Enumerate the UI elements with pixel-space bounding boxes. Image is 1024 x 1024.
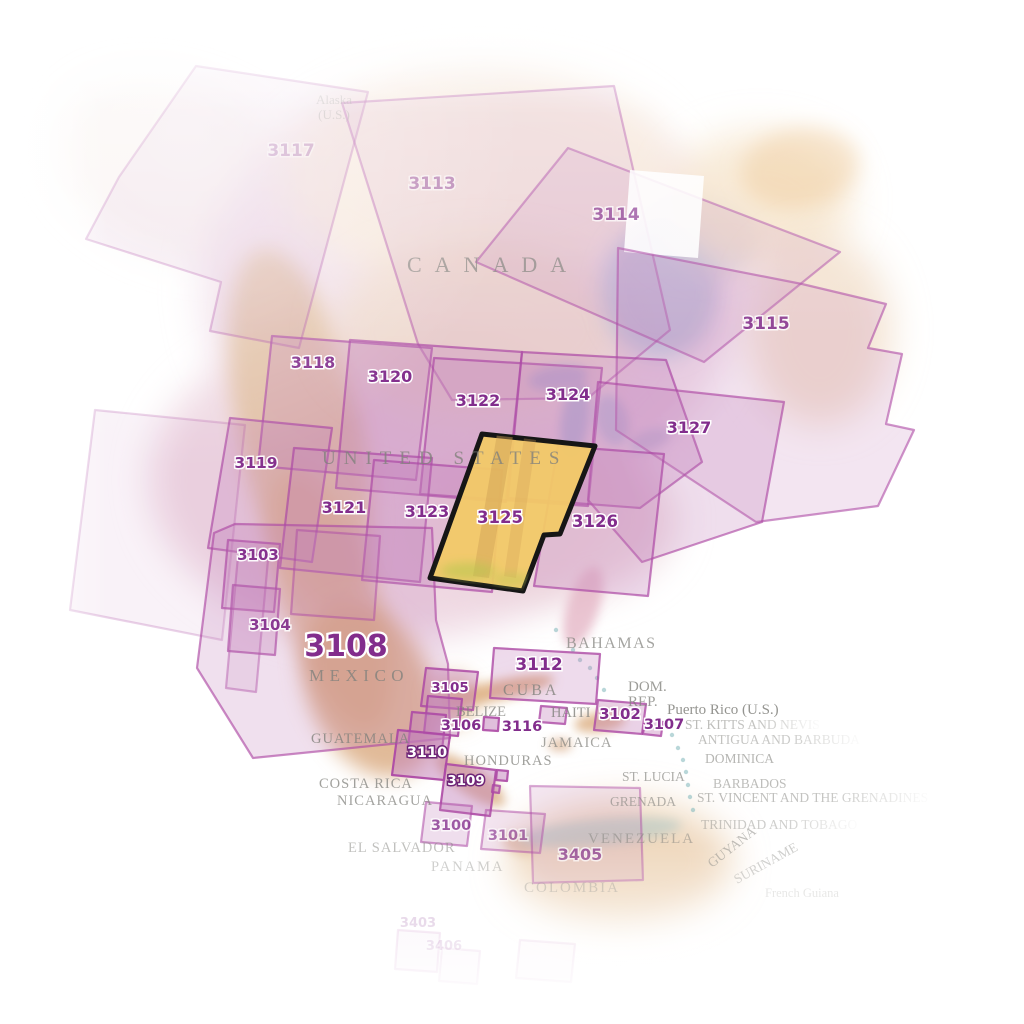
fade-bottom: [0, 845, 1024, 1024]
map-canvas: 3117311331143115311831203122312431273119…: [0, 0, 1024, 1024]
fade-top: [0, 0, 1024, 115]
fade-right: [915, 0, 1024, 1024]
chart-index-map: 3117311331143115311831203122312431273119…: [0, 0, 1024, 1024]
fade-left: [0, 0, 110, 1024]
